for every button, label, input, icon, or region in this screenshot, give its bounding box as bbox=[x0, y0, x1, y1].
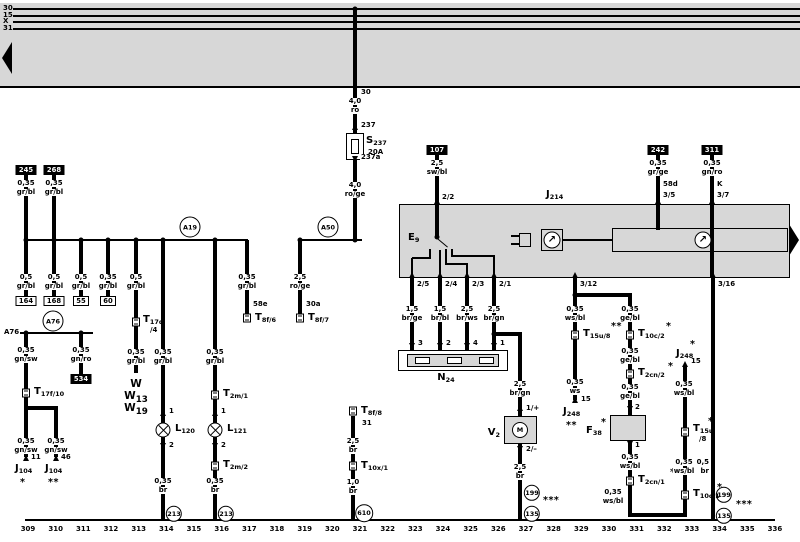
label-: *** bbox=[543, 496, 559, 506]
j214-plug-symbol bbox=[519, 233, 531, 247]
label-30: 30 bbox=[360, 89, 372, 96]
label-2: 2 bbox=[445, 340, 452, 347]
connector-t8f-8 bbox=[349, 407, 357, 416]
label-wsbl: ws/bl bbox=[673, 468, 696, 475]
label-grbl: gr/bl bbox=[71, 283, 91, 290]
label-t10c2: T10c/2 bbox=[638, 329, 665, 340]
label-2: 2 bbox=[634, 404, 641, 411]
junction-dot bbox=[24, 238, 29, 243]
label-: ** bbox=[611, 322, 622, 332]
junction-dot bbox=[79, 331, 84, 336]
pin-arrow-icon bbox=[517, 446, 523, 452]
label-brws: br/ws bbox=[455, 315, 479, 322]
label-4: /4 bbox=[149, 327, 158, 334]
label-237: 237 bbox=[360, 122, 377, 129]
label-br: br bbox=[515, 473, 525, 480]
terminal-box-242: 242 bbox=[648, 145, 669, 155]
label-4: 4 bbox=[472, 340, 479, 347]
junction-dot bbox=[353, 7, 358, 12]
circle-610: 610 bbox=[355, 504, 373, 522]
label-grbl: gr/bl bbox=[126, 283, 146, 290]
circle-M: M bbox=[512, 422, 528, 438]
connector-t17d-4 bbox=[132, 318, 140, 327]
pin-arrow-icon bbox=[352, 156, 358, 162]
label-25: 2,5 bbox=[293, 274, 307, 281]
connector-t8f-6 bbox=[243, 314, 251, 323]
track-number-309: 309 bbox=[21, 526, 36, 533]
pin-arrow-icon bbox=[434, 198, 440, 204]
label-035: 0,35 bbox=[153, 349, 172, 356]
label-gnro: gn/ro bbox=[701, 169, 724, 176]
track-number-321: 321 bbox=[353, 526, 368, 533]
label-237a: 237a bbox=[360, 154, 381, 161]
junction-dot bbox=[492, 332, 497, 337]
label-brgn: br/gn bbox=[482, 315, 505, 322]
label-k: K bbox=[716, 181, 723, 188]
junction-dot bbox=[52, 238, 57, 243]
connector-t10x-1 bbox=[349, 462, 357, 471]
label-035: 0,35 bbox=[44, 180, 63, 187]
track-number-331: 331 bbox=[629, 526, 644, 533]
track-number-320: 320 bbox=[325, 526, 340, 533]
pin-arrow-icon bbox=[409, 272, 415, 278]
label-24: 2/4 bbox=[444, 281, 458, 288]
label-035: 0,35 bbox=[565, 379, 584, 386]
junction-dot bbox=[134, 238, 139, 243]
label-brbl: br/bl bbox=[430, 315, 450, 322]
label-wsbl: ws/bl bbox=[564, 315, 587, 322]
junction-dot bbox=[24, 331, 29, 336]
label-roge: ro/ge bbox=[344, 191, 367, 198]
label-w: W bbox=[130, 379, 142, 390]
junction-dot bbox=[213, 238, 218, 243]
pin-arrow-icon bbox=[491, 343, 497, 349]
label-2: 2 bbox=[220, 442, 227, 449]
label-: *** bbox=[736, 500, 752, 510]
wire bbox=[446, 263, 468, 264]
pin-arrow-icon bbox=[23, 455, 29, 461]
track-number-316: 316 bbox=[214, 526, 229, 533]
label-035: 0,35 bbox=[46, 438, 65, 445]
pin-arrow-icon bbox=[160, 443, 166, 449]
label-35: 3/5 bbox=[662, 192, 676, 199]
pin-arrow-icon bbox=[491, 272, 497, 278]
label-grbl: gr/bl bbox=[16, 189, 36, 196]
circle-199: 199 bbox=[524, 485, 540, 501]
label-25: 2,5 bbox=[513, 464, 527, 471]
label-grbl: gr/bl bbox=[205, 358, 225, 365]
label-: ** bbox=[566, 421, 577, 431]
label-05: 0,5 bbox=[19, 274, 33, 281]
label-f38: F38 bbox=[586, 426, 602, 437]
junction-dot bbox=[353, 238, 358, 243]
label-grbl: gr/bl bbox=[126, 358, 146, 365]
label-br: br bbox=[210, 487, 220, 494]
label-035: 0,35 bbox=[620, 348, 639, 355]
label-1: 1/+ bbox=[525, 405, 540, 412]
label-gebl: ge/bl bbox=[619, 357, 641, 364]
label-1: 1 bbox=[634, 442, 641, 449]
pin-arrow-icon bbox=[352, 124, 358, 130]
label-gnro: gn/ro bbox=[70, 356, 93, 363]
circle-A76: A76 bbox=[43, 311, 64, 332]
label-25: 2/5 bbox=[416, 281, 430, 288]
label-035: 0,35 bbox=[603, 489, 622, 496]
label-t2cn1: T2cn/1 bbox=[638, 475, 665, 486]
track-number-322: 322 bbox=[380, 526, 395, 533]
terminal-box-164: 164 bbox=[16, 296, 37, 306]
terminal-box-168: 168 bbox=[44, 296, 65, 306]
label-w19: W19 bbox=[124, 403, 148, 417]
label-brgn: br/gn bbox=[508, 390, 531, 397]
label-t2m2: T2m/2 bbox=[223, 460, 248, 471]
track-number-324: 324 bbox=[436, 526, 451, 533]
label-035: 0,35 bbox=[205, 478, 224, 485]
label-15: 1,5 bbox=[433, 306, 447, 313]
label-25: 2,5 bbox=[460, 306, 474, 313]
junction-dot bbox=[435, 235, 440, 240]
label-t10x1: T10x/1 bbox=[361, 461, 388, 472]
wire bbox=[0, 86, 800, 87]
label-40: 4,0 bbox=[348, 98, 362, 105]
label-gnsw: gn/sw bbox=[13, 356, 38, 363]
pin-arrow-icon bbox=[655, 198, 661, 204]
wire bbox=[628, 513, 687, 517]
label-3: 3 bbox=[417, 340, 424, 347]
label-035: 0,35 bbox=[620, 306, 639, 313]
label-1: 1 bbox=[220, 408, 227, 415]
label-05: 0,5 bbox=[47, 274, 61, 281]
label-46: 46 bbox=[60, 454, 72, 461]
junction-dot bbox=[298, 238, 303, 243]
wire bbox=[13, 28, 800, 29]
pin-arrow-icon bbox=[682, 361, 688, 367]
n24-resistor-1 bbox=[415, 357, 430, 364]
label-05: 0,5 bbox=[696, 459, 710, 466]
label-n24: N24 bbox=[437, 373, 454, 384]
label-035: 0,35 bbox=[153, 478, 172, 485]
label-31: 31 bbox=[3, 25, 13, 32]
thermoswitch-f38-body bbox=[610, 415, 646, 441]
label-s237: S237 bbox=[366, 136, 387, 147]
pin-arrow-icon bbox=[627, 406, 633, 412]
label-: * bbox=[668, 362, 673, 372]
j214-wiper-icon: ↗ bbox=[695, 232, 712, 249]
pin-arrow-icon bbox=[517, 405, 523, 411]
wire bbox=[711, 278, 715, 520]
connector-t2cn-2 bbox=[626, 370, 634, 379]
bus-continues-left-icon bbox=[2, 42, 12, 74]
label-swbl: sw/bl bbox=[426, 169, 449, 176]
track-number-319: 319 bbox=[297, 526, 312, 533]
j214-continues-right-icon bbox=[789, 224, 799, 256]
wire bbox=[518, 443, 522, 520]
pin-arrow-icon bbox=[464, 272, 470, 278]
pin-arrow-icon bbox=[409, 343, 415, 349]
wire bbox=[161, 240, 165, 424]
label-t15u8: T15u/8 bbox=[583, 329, 610, 340]
j214-wiper-icon: ↗ bbox=[544, 232, 561, 249]
wire bbox=[511, 243, 519, 244]
wire bbox=[13, 15, 800, 16]
n24-resistor-3 bbox=[479, 357, 494, 364]
pin-arrow-icon bbox=[572, 272, 578, 278]
connector-t2cn-1 bbox=[626, 477, 634, 486]
terminal-box-55: 55 bbox=[73, 296, 89, 306]
connector-t17f-10 bbox=[22, 389, 30, 398]
label-25: 2,5 bbox=[346, 438, 360, 445]
wire bbox=[511, 235, 519, 236]
track-number-323: 323 bbox=[408, 526, 423, 533]
label-ws: ws bbox=[569, 388, 582, 395]
label-8: /8 bbox=[698, 436, 707, 443]
label-grge: gr/ge bbox=[647, 169, 670, 176]
track-number-329: 329 bbox=[574, 526, 589, 533]
circle-A19: A19 bbox=[180, 217, 201, 238]
label-035: 0,35 bbox=[702, 160, 721, 167]
label-37: 3/7 bbox=[716, 192, 730, 199]
track-number-315: 315 bbox=[187, 526, 202, 533]
wire bbox=[13, 8, 800, 9]
wire bbox=[429, 249, 430, 259]
pin-arrow-icon bbox=[212, 443, 218, 449]
connector-t10c-1 bbox=[681, 491, 689, 500]
label-wsbl: ws/bl bbox=[602, 498, 625, 505]
label-j104: J104 bbox=[45, 464, 62, 475]
wire bbox=[412, 257, 431, 258]
pin-arrow-icon bbox=[709, 198, 715, 204]
label-a76: A76 bbox=[3, 329, 20, 336]
pin-arrow-icon bbox=[710, 272, 716, 278]
label-br: br bbox=[348, 447, 358, 454]
label-t17f10: T17f/10 bbox=[34, 387, 64, 398]
pin-arrow-icon bbox=[437, 343, 443, 349]
label-035: 0,35 bbox=[16, 438, 35, 445]
circle-135: 135 bbox=[716, 508, 732, 524]
label-22: 2/2 bbox=[441, 194, 455, 201]
label-035: 0,35 bbox=[126, 349, 145, 356]
wire bbox=[24, 406, 58, 410]
label-035: 0,35 bbox=[620, 454, 639, 461]
label-: ** bbox=[48, 478, 59, 488]
label-: * bbox=[20, 478, 25, 488]
label-1: 1 bbox=[168, 408, 175, 415]
label-23: 2/3 bbox=[471, 281, 485, 288]
label-t2m1: T2m/1 bbox=[223, 389, 248, 400]
terminal-box-107: 107 bbox=[427, 145, 448, 155]
track-number-327: 327 bbox=[519, 526, 534, 533]
track-number-336: 336 bbox=[768, 526, 783, 533]
label-035: 0,35 bbox=[16, 347, 35, 354]
connector-t15u bbox=[681, 428, 689, 437]
label-grbl: gr/bl bbox=[44, 189, 64, 196]
track-number-333: 333 bbox=[685, 526, 700, 533]
label-05: 0,5 bbox=[74, 274, 88, 281]
n24-resistor-2 bbox=[447, 357, 462, 364]
circle-A50: A50 bbox=[318, 217, 339, 238]
junction-dot bbox=[573, 293, 578, 298]
track-number-328: 328 bbox=[546, 526, 561, 533]
label-t8f8: T8f/8 bbox=[361, 406, 382, 417]
label-58d: 58d bbox=[662, 181, 679, 188]
label-10: 1,0 bbox=[346, 479, 360, 486]
label-035: 0,35 bbox=[648, 160, 667, 167]
label-grbl: gr/bl bbox=[44, 283, 64, 290]
label-035: 0,35 bbox=[565, 306, 584, 313]
label-t8f7: T8f/7 bbox=[308, 313, 329, 324]
label-br: br bbox=[158, 487, 168, 494]
track-number-311: 311 bbox=[76, 526, 91, 533]
label-05: 0,5 bbox=[129, 274, 143, 281]
label-11: 11 bbox=[30, 454, 42, 461]
label-wsbl: ws/bl bbox=[673, 390, 696, 397]
label-br: br bbox=[348, 488, 358, 495]
label-31: 31 bbox=[361, 420, 373, 427]
label-21: 2/1 bbox=[498, 281, 512, 288]
label-wsbl: ws/bl bbox=[619, 463, 642, 470]
track-number-317: 317 bbox=[242, 526, 257, 533]
label-j248: J248 bbox=[563, 407, 580, 418]
label-30a: 30a bbox=[305, 301, 321, 308]
pin-arrow-icon bbox=[464, 343, 470, 349]
label-25: 2,5 bbox=[513, 381, 527, 388]
pin-arrow-icon bbox=[160, 410, 166, 416]
label-035: 0,35 bbox=[205, 349, 224, 356]
label-2: 2 bbox=[168, 442, 175, 449]
label-40: 4,0 bbox=[348, 182, 362, 189]
terminal-box-60: 60 bbox=[100, 296, 116, 306]
terminal-box-268: 268 bbox=[44, 165, 65, 175]
label-15: 1,5 bbox=[405, 306, 419, 313]
label-t17d: T17d bbox=[143, 315, 164, 326]
track-number-326: 326 bbox=[491, 526, 506, 533]
track-number-330: 330 bbox=[602, 526, 617, 533]
pin-arrow-icon bbox=[437, 272, 443, 278]
wire bbox=[25, 519, 775, 521]
label-l121: L121 bbox=[227, 424, 247, 435]
label-312: 3/12 bbox=[579, 281, 598, 288]
terminal-box-311: 311 bbox=[702, 145, 723, 155]
track-number-310: 310 bbox=[48, 526, 63, 533]
pin-arrow-icon bbox=[627, 441, 633, 447]
label-l120: L120 bbox=[175, 424, 195, 435]
track-number-335: 335 bbox=[740, 526, 755, 533]
label-e9: E9 bbox=[408, 233, 419, 244]
label-035: 0,35 bbox=[620, 384, 639, 391]
junction-dot bbox=[161, 238, 166, 243]
label-15: 15 bbox=[580, 396, 592, 403]
label-t2cn2: T2cn/2 bbox=[638, 368, 665, 379]
wire bbox=[445, 249, 446, 265]
label-brge: br/ge bbox=[401, 315, 424, 322]
label-j104: J104 bbox=[15, 464, 32, 475]
pin-arrow-icon bbox=[212, 410, 218, 416]
terminal-box-534: 534 bbox=[71, 374, 92, 384]
track-number-334: 334 bbox=[712, 526, 727, 533]
pin-arrow-icon bbox=[53, 455, 59, 461]
wire bbox=[573, 293, 632, 297]
label-1: 1 bbox=[499, 340, 506, 347]
label-035: 0,35 bbox=[98, 274, 117, 281]
wire bbox=[13, 21, 800, 22]
wire bbox=[452, 255, 495, 256]
junction-dot bbox=[106, 238, 111, 243]
label-ro: ro bbox=[350, 107, 360, 114]
wiring-diagram: 2452681641685560534107242311A19A50A76213… bbox=[0, 0, 800, 542]
label-035: 0,35 bbox=[674, 381, 693, 388]
label-t8f6: T8f/6 bbox=[255, 313, 276, 324]
label-316: 3/16 bbox=[717, 281, 736, 288]
track-number-312: 312 bbox=[104, 526, 119, 533]
label-15: 15 bbox=[690, 358, 702, 365]
label-2: 2/– bbox=[525, 446, 538, 453]
label-grbl: gr/bl bbox=[237, 283, 257, 290]
lamp-l121 bbox=[208, 423, 223, 438]
track-number-332: 332 bbox=[657, 526, 672, 533]
lamp-l120 bbox=[156, 423, 171, 438]
wire bbox=[451, 249, 452, 257]
connector-t8f-7 bbox=[296, 314, 304, 323]
track-number-318: 318 bbox=[270, 526, 285, 533]
connector-t2m-2 bbox=[211, 462, 219, 471]
fuse-s237-element bbox=[351, 139, 359, 154]
label-035: 0,35 bbox=[71, 347, 90, 354]
label-gebl: ge/bl bbox=[619, 315, 641, 322]
label-035: 0,35 bbox=[674, 459, 693, 466]
junction-dot bbox=[79, 238, 84, 243]
track-number-325: 325 bbox=[463, 526, 478, 533]
label-j214: J214 bbox=[546, 190, 563, 201]
wire bbox=[79, 333, 83, 375]
label-br: br bbox=[700, 468, 710, 475]
track-number-313: 313 bbox=[131, 526, 146, 533]
label-roge: ro/ge bbox=[289, 283, 312, 290]
label-grbl: gr/bl bbox=[98, 283, 118, 290]
label-035: 0,35 bbox=[16, 180, 35, 187]
connector-t2m-1 bbox=[211, 391, 219, 400]
label-gebl: ge/bl bbox=[619, 393, 641, 400]
label-: * bbox=[708, 417, 713, 427]
label-: * bbox=[601, 418, 606, 428]
connector-t10c-2 bbox=[626, 331, 634, 340]
label-58e: 58e bbox=[252, 301, 269, 308]
label-: * bbox=[717, 483, 722, 493]
label-grbl: gr/bl bbox=[16, 283, 36, 290]
track-number-314: 314 bbox=[159, 526, 174, 533]
label-25: 2,5 bbox=[487, 306, 501, 313]
connector-t15u-8 bbox=[571, 331, 579, 340]
label-035: 0,35 bbox=[237, 274, 256, 281]
terminal-box-245: 245 bbox=[16, 165, 37, 175]
pin-arrow-icon bbox=[572, 397, 578, 403]
wire bbox=[563, 239, 612, 240]
label-grbl: gr/bl bbox=[153, 358, 173, 365]
label-: * bbox=[666, 322, 671, 332]
label-t10c1: T10c/1 bbox=[693, 489, 720, 500]
label-25: 2,5 bbox=[430, 160, 444, 167]
label-v2: V2 bbox=[488, 428, 500, 439]
